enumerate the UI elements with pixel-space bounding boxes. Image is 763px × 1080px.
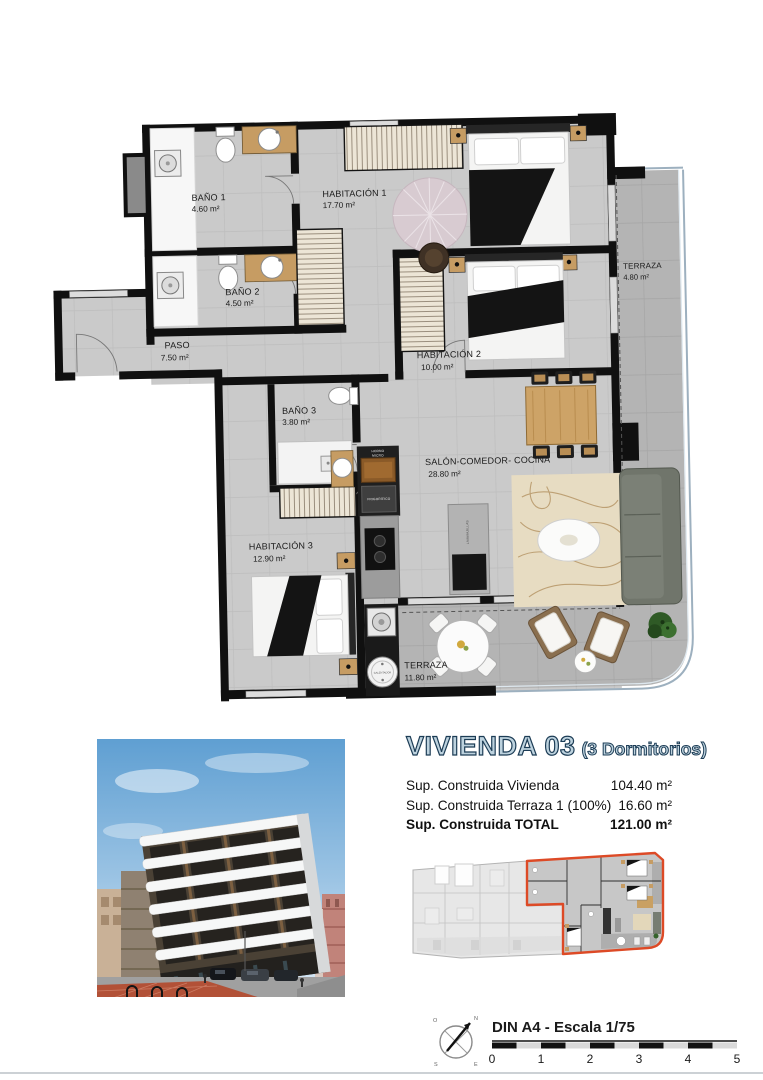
table-row: Sup. Construida Terraza 1 (100%) 16.60 m… <box>406 796 672 816</box>
toilet-icon <box>219 255 237 264</box>
main-building <box>139 813 331 995</box>
svg-text:4.60 m²: 4.60 m² <box>192 204 220 214</box>
svg-text:BAÑO 3: BAÑO 3 <box>282 405 316 416</box>
kitchen-tower-icon: HORNO MICRO FRIGORÍFICO <box>357 446 400 517</box>
svg-text:10.00 m²: 10.00 m² <box>421 362 454 372</box>
dishwasher-label: LAVAVAJILLAS <box>465 520 470 544</box>
floor-plan: HORNO MICRO FRIGORÍFICO LAVAVAJILLAS <box>0 0 763 730</box>
micro-label: MICRO <box>372 453 384 457</box>
svg-text:HABITACIÓN 2: HABITACIÓN 2 <box>417 349 481 360</box>
svg-text:2: 2 <box>587 1052 594 1066</box>
brochure-page: HORNO MICRO FRIGORÍFICO LAVAVAJILLAS <box>0 0 763 1080</box>
footer-scale-block: N O S E DIN A4 - Escala 1/75 0 1 <box>420 1005 763 1075</box>
compass-west-label: O <box>433 1018 438 1024</box>
bed-icon <box>449 252 579 361</box>
table-row: Sup. Construida TOTAL 121.00 m² <box>406 815 672 835</box>
svg-text:4.50 m²: 4.50 m² <box>226 299 254 309</box>
svg-text:5: 5 <box>734 1052 741 1066</box>
building-photo <box>97 739 345 997</box>
surface-label: Sup. Construida TOTAL <box>406 815 559 835</box>
svg-text:HABITACIÓN 3: HABITACIÓN 3 <box>249 540 313 551</box>
compass-north-label: N <box>474 1016 478 1022</box>
surface-label: Sup. Construida Vivienda <box>406 776 559 796</box>
svg-text:11.80 m²: 11.80 m² <box>405 673 437 683</box>
svg-text:PASO: PASO <box>164 340 189 351</box>
page-title: VIVIENDA 03(3 Dormitorios) <box>406 731 708 762</box>
toilet-icon <box>216 127 234 136</box>
svg-text:0: 0 <box>489 1052 496 1066</box>
rug-icon <box>511 473 628 607</box>
sink-icon <box>333 458 352 477</box>
svg-text:4: 4 <box>685 1052 692 1066</box>
surface-value: 104.40 m² <box>611 776 672 796</box>
svg-text:TERRAZA: TERRAZA <box>404 660 448 671</box>
svg-text:BAÑO 1: BAÑO 1 <box>191 192 225 203</box>
scale-bar: 0 1 2 3 4 5 <box>489 1041 741 1066</box>
compass-east-label: E <box>474 1062 478 1068</box>
surface-value: 16.60 m² <box>618 796 672 816</box>
unit-title: VIVIENDA 03 <box>406 731 576 761</box>
svg-text:3: 3 <box>636 1052 643 1066</box>
scale-ticks: 0 1 2 3 4 5 <box>489 1052 741 1066</box>
toilet-icon <box>329 387 351 404</box>
svg-text:12.90 m²: 12.90 m² <box>253 554 286 564</box>
svg-text:4.80 m²: 4.80 m² <box>623 272 649 282</box>
svg-text:28.80 m²: 28.80 m² <box>428 469 461 479</box>
sofa-icon <box>619 468 682 605</box>
unit-info: VIVIENDA 03(3 Dormitorios) Sup. Construi… <box>406 731 708 835</box>
svg-text:TERRAZA: TERRAZA <box>623 261 662 271</box>
compass-icon: N O S E <box>433 1016 478 1068</box>
island-icon: LAVAVAJILLAS <box>448 504 490 595</box>
scale-label: DIN A4 - Escala 1/75 <box>492 1019 635 1036</box>
svg-text:17.70 m²: 17.70 m² <box>323 200 356 210</box>
water-heater-icon: CALENTADOR <box>364 604 400 697</box>
surface-table: Sup. Construida Vivienda 104.40 m² Sup. … <box>406 776 672 835</box>
svg-text:HABITACIÓN 1: HABITACIÓN 1 <box>322 188 386 199</box>
svg-text:7.50 m²: 7.50 m² <box>161 353 189 363</box>
svg-text:3.80 m²: 3.80 m² <box>282 417 310 427</box>
page-bottom-rule <box>0 1072 763 1074</box>
unit-subtitle: (3 Dormitorios) <box>582 739 707 759</box>
key-plan <box>405 848 677 966</box>
kitchen-counter-icon <box>360 516 400 599</box>
surface-label: Sup. Construida Terraza 1 (100%) <box>406 796 611 816</box>
surface-value: 121.00 m² <box>610 815 672 835</box>
compass-south-label: S <box>434 1062 438 1068</box>
table-row: Sup. Construida Vivienda 104.40 m² <box>406 776 672 796</box>
svg-text:1: 1 <box>538 1052 545 1066</box>
svg-text:BAÑO 2: BAÑO 2 <box>225 286 259 297</box>
side-table-icon <box>574 651 596 673</box>
fridge-label: FRIGORÍFICO <box>367 497 390 501</box>
bed-icon <box>450 123 589 247</box>
cooktop-icon <box>364 528 395 571</box>
heater-label: CALENTADOR <box>374 670 392 674</box>
